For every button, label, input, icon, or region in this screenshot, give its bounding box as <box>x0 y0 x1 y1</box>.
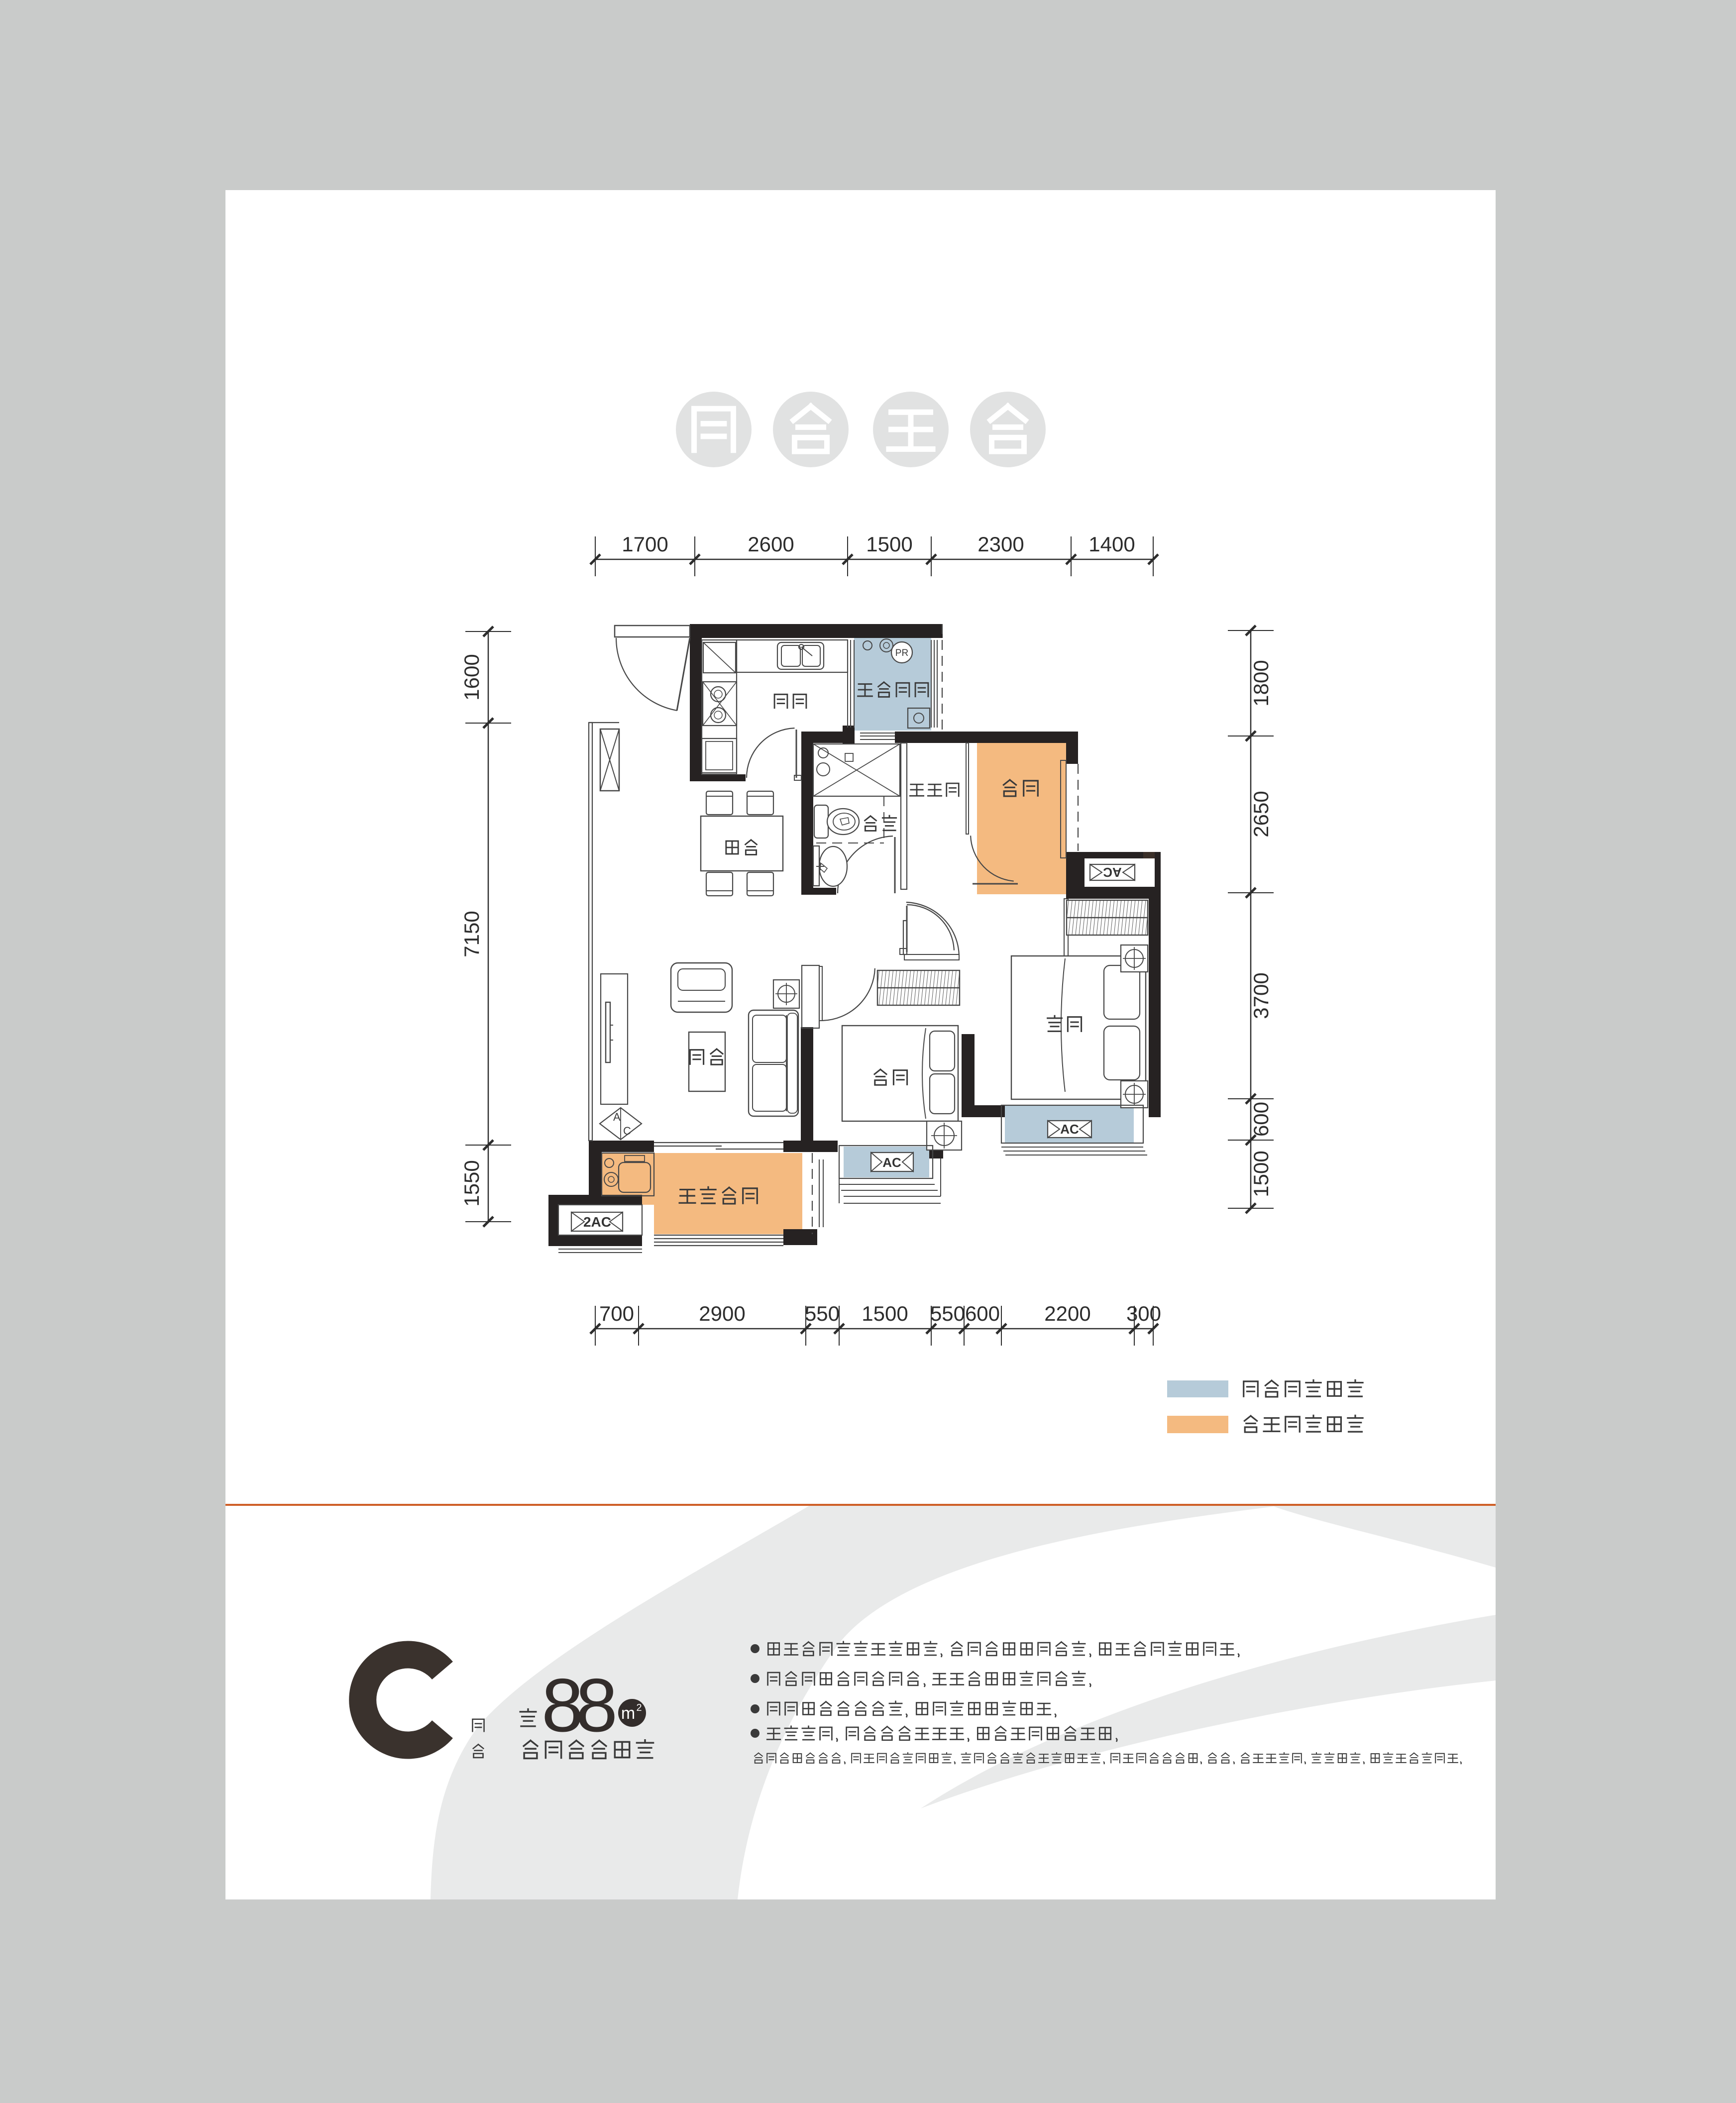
svg-text:7150: 7150 <box>460 911 483 957</box>
svg-text:3700: 3700 <box>1249 972 1273 1019</box>
svg-text:A: A <box>613 1111 621 1123</box>
svg-text:C: C <box>623 1125 631 1137</box>
svg-text:1500: 1500 <box>1249 1151 1273 1197</box>
svg-text:2650: 2650 <box>1249 791 1273 837</box>
svg-text:AC: AC <box>1060 1122 1079 1137</box>
svg-text:m: m <box>621 1704 635 1723</box>
svg-text:1700: 1700 <box>622 532 668 556</box>
svg-text:1500: 1500 <box>866 532 912 556</box>
svg-text:700: 700 <box>599 1302 634 1325</box>
svg-text:2200: 2200 <box>1044 1302 1090 1325</box>
svg-text:1800: 1800 <box>1249 660 1273 706</box>
svg-text:1400: 1400 <box>1088 532 1135 556</box>
svg-text:600: 600 <box>965 1302 1000 1325</box>
svg-text:AC: AC <box>1103 865 1122 880</box>
svg-text:1500: 1500 <box>862 1302 908 1325</box>
svg-text:2AC: 2AC <box>583 1214 611 1230</box>
svg-text:2900: 2900 <box>699 1302 745 1325</box>
svg-text:550: 550 <box>805 1302 840 1325</box>
svg-text:88: 88 <box>542 1663 615 1748</box>
svg-text:2300: 2300 <box>977 532 1024 556</box>
svg-text:2600: 2600 <box>748 532 794 556</box>
svg-text:550: 550 <box>930 1302 965 1325</box>
svg-text:300: 300 <box>1126 1302 1161 1325</box>
svg-text:AC: AC <box>882 1155 901 1170</box>
svg-text:1600: 1600 <box>460 654 483 700</box>
svg-text:PR: PR <box>895 648 908 658</box>
svg-text:2: 2 <box>636 1702 642 1713</box>
svg-text:1550: 1550 <box>460 1160 483 1206</box>
svg-text:600: 600 <box>1249 1102 1273 1137</box>
